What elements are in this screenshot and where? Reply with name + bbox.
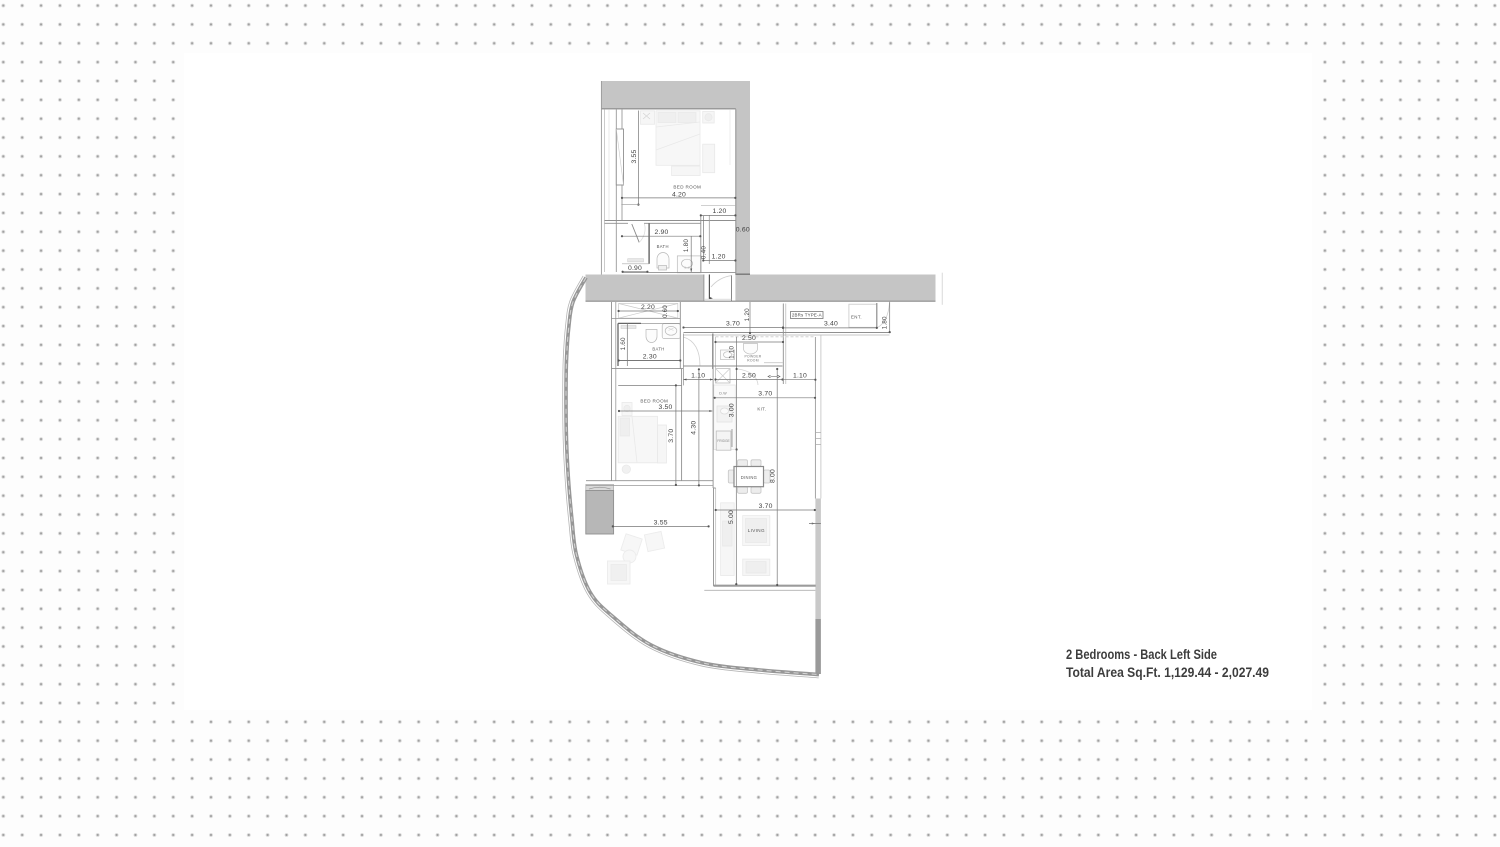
svg-text:1.80: 1.80 (683, 239, 690, 252)
svg-text:0.90: 0.90 (628, 265, 642, 272)
svg-text:BATH: BATH (657, 244, 669, 249)
svg-text:2.30: 2.30 (643, 353, 657, 360)
svg-text:ENT.: ENT. (851, 315, 862, 320)
svg-text:3.70: 3.70 (759, 503, 773, 510)
svg-text:0.60: 0.60 (736, 226, 750, 233)
svg-text:3.50: 3.50 (658, 404, 672, 411)
svg-text:0.60: 0.60 (662, 305, 669, 318)
svg-text:3.40: 3.40 (824, 321, 838, 328)
svg-text:2.50: 2.50 (742, 335, 756, 342)
svg-text:1.10: 1.10 (729, 345, 736, 358)
svg-text:Total Area Sq.Ft. 1,129.44 - 2: Total Area Sq.Ft. 1,129.44 - 2,027.49 (1066, 664, 1269, 680)
svg-text:3.70: 3.70 (726, 320, 740, 327)
svg-text:5.00: 5.00 (728, 510, 735, 524)
svg-text:BED ROOM: BED ROOM (640, 399, 668, 404)
svg-text:0.40: 0.40 (701, 246, 708, 259)
svg-text:KIT.: KIT. (757, 407, 766, 412)
svg-text:1.60: 1.60 (620, 337, 627, 350)
svg-text:3.55: 3.55 (631, 149, 638, 163)
svg-text:FRIDGE: FRIDGE (717, 439, 730, 443)
svg-text:1.80: 1.80 (882, 316, 889, 329)
svg-text:2.90: 2.90 (654, 229, 668, 236)
svg-text:4.30: 4.30 (691, 421, 698, 435)
svg-text:BED ROOM: BED ROOM (673, 184, 701, 189)
svg-text:1.20: 1.20 (744, 308, 751, 321)
svg-text:LIVING: LIVING (748, 528, 765, 533)
svg-text:1.20: 1.20 (712, 253, 726, 260)
svg-text:D.W: D.W (719, 392, 727, 396)
svg-text:3.00: 3.00 (729, 403, 736, 417)
svg-text:3.70: 3.70 (758, 391, 772, 398)
svg-text:ROOM: ROOM (747, 358, 759, 362)
svg-text:1.20: 1.20 (712, 208, 726, 215)
svg-text:4.20: 4.20 (672, 192, 686, 199)
svg-text:1.10: 1.10 (691, 372, 705, 379)
svg-text:3.55: 3.55 (654, 519, 668, 526)
svg-text:8.00: 8.00 (769, 469, 776, 483)
svg-text:2.20: 2.20 (641, 304, 655, 311)
svg-text:2.50: 2.50 (742, 373, 756, 380)
svg-text:DINING: DINING (741, 475, 757, 480)
svg-text:BATH: BATH (652, 346, 664, 351)
svg-text:1.10: 1.10 (793, 373, 807, 380)
svg-text:2BRs TYPE-A: 2BRs TYPE-A (792, 313, 822, 318)
svg-text:2 Bedrooms - Back Left Side: 2 Bedrooms - Back Left Side (1066, 646, 1217, 662)
svg-text:3.70: 3.70 (668, 429, 675, 443)
